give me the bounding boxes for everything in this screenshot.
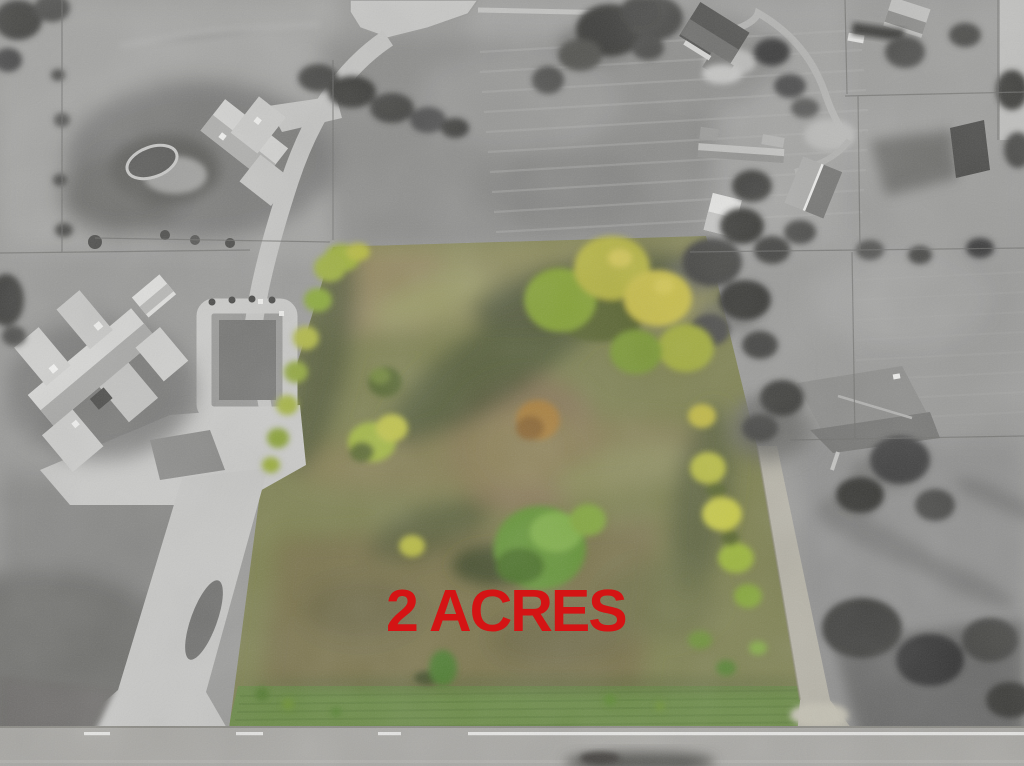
photo-grain-overlay [0,0,1024,766]
acreage-label: 2 ACRES [386,582,626,641]
aerial-photo: 2 ACRES [0,0,1024,766]
aerial-photo-canvas [0,0,1024,766]
